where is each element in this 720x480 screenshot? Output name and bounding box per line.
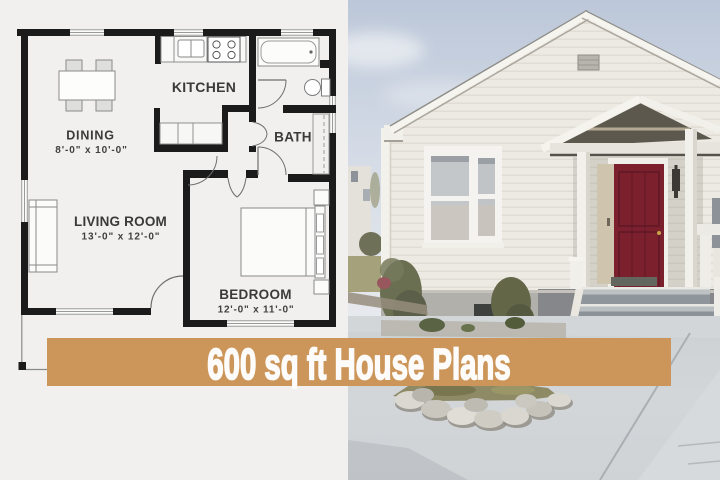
svg-text:LIVING ROOM: LIVING ROOM [74, 214, 167, 229]
svg-text:12'-0" x 11'-0": 12'-0" x 11'-0" [218, 305, 295, 316]
svg-text:8'-0" x 10'-0": 8'-0" x 10'-0" [55, 145, 127, 156]
svg-text:DINING: DINING [66, 129, 115, 143]
svg-text:KITCHEN: KITCHEN [172, 79, 236, 95]
svg-text:BATH: BATH [274, 130, 312, 145]
svg-text:13'-0" x 12'-0": 13'-0" x 12'-0" [82, 232, 161, 243]
svg-text:BEDROOM: BEDROOM [219, 287, 292, 302]
